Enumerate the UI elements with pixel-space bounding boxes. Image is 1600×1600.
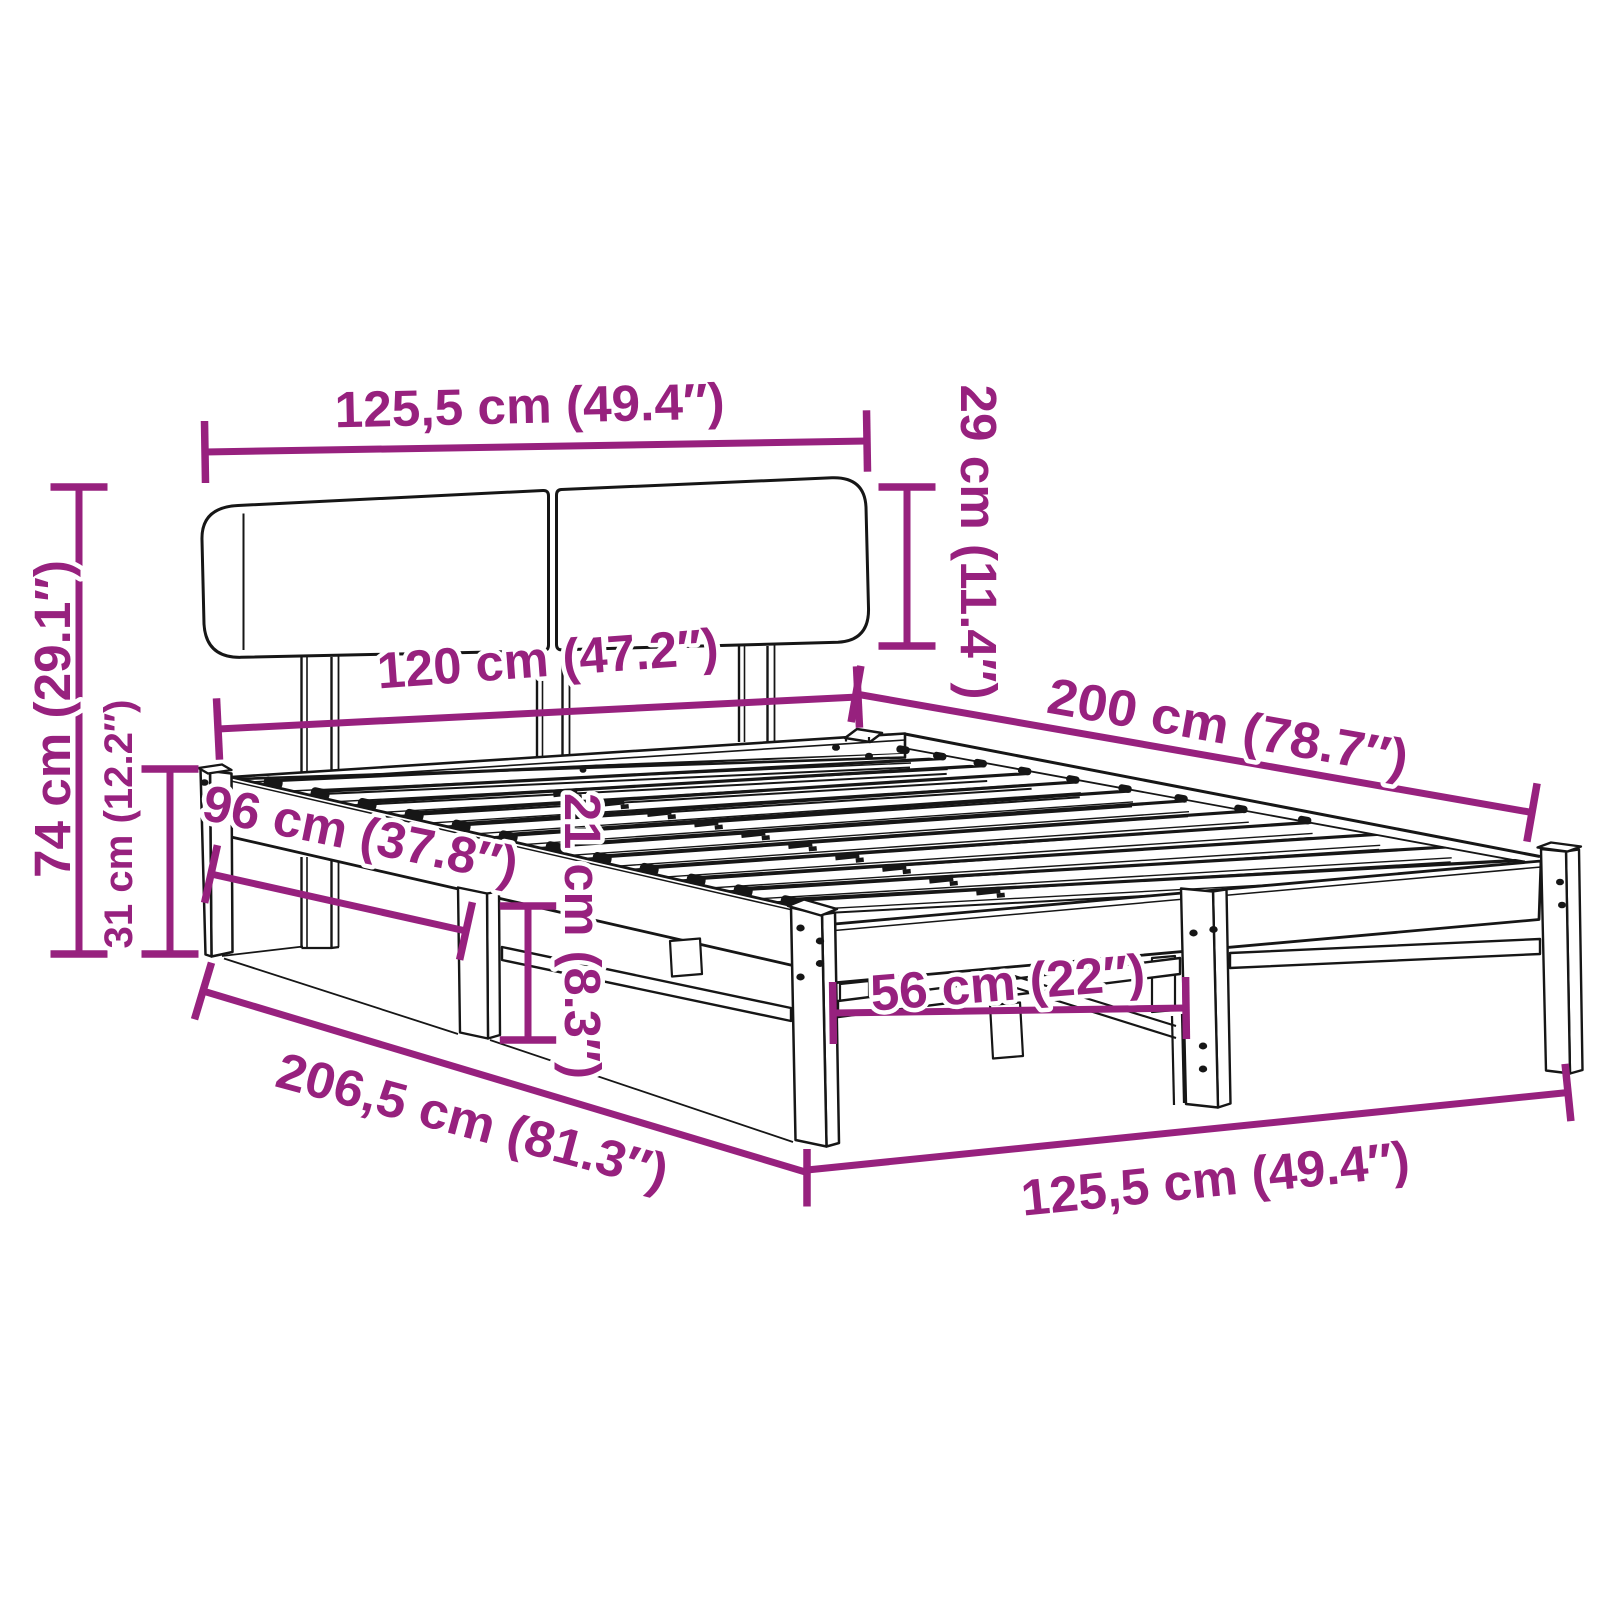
- svg-text:21 cm (8.3″): 21 cm (8.3″): [554, 793, 611, 1079]
- svg-text:74 cm (29.1″): 74 cm (29.1″): [24, 560, 81, 878]
- svg-text:29 cm (11.4″): 29 cm (11.4″): [950, 385, 1007, 700]
- svg-text:125,5 cm (49.4″): 125,5 cm (49.4″): [334, 373, 725, 439]
- svg-text:31 cm (12.2″): 31 cm (12.2″): [97, 700, 141, 949]
